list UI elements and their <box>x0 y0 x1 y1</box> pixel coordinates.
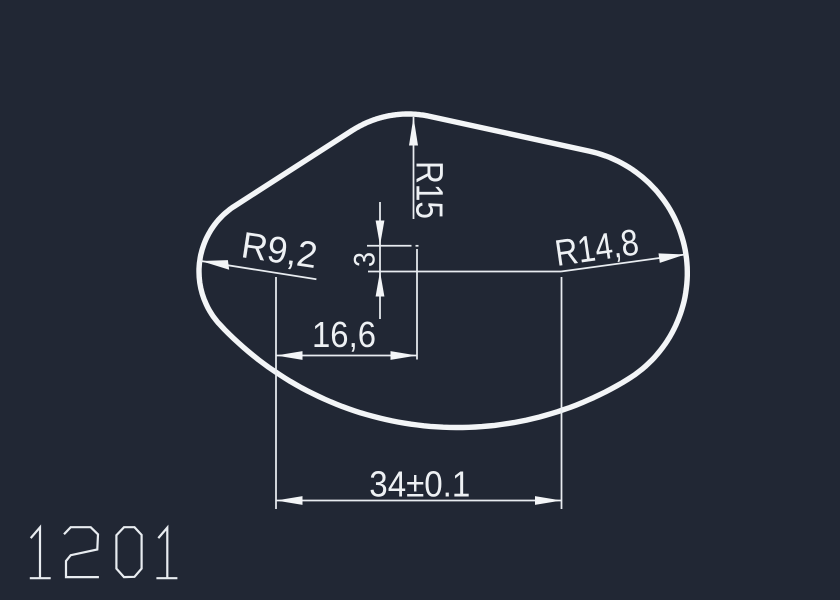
svg-text:16,6: 16,6 <box>312 314 376 355</box>
svg-text:R14,8: R14,8 <box>552 221 641 274</box>
svg-text:R15: R15 <box>408 161 450 219</box>
svg-text:3: 3 <box>349 252 382 267</box>
svg-text:34±0.1: 34±0.1 <box>369 464 470 505</box>
